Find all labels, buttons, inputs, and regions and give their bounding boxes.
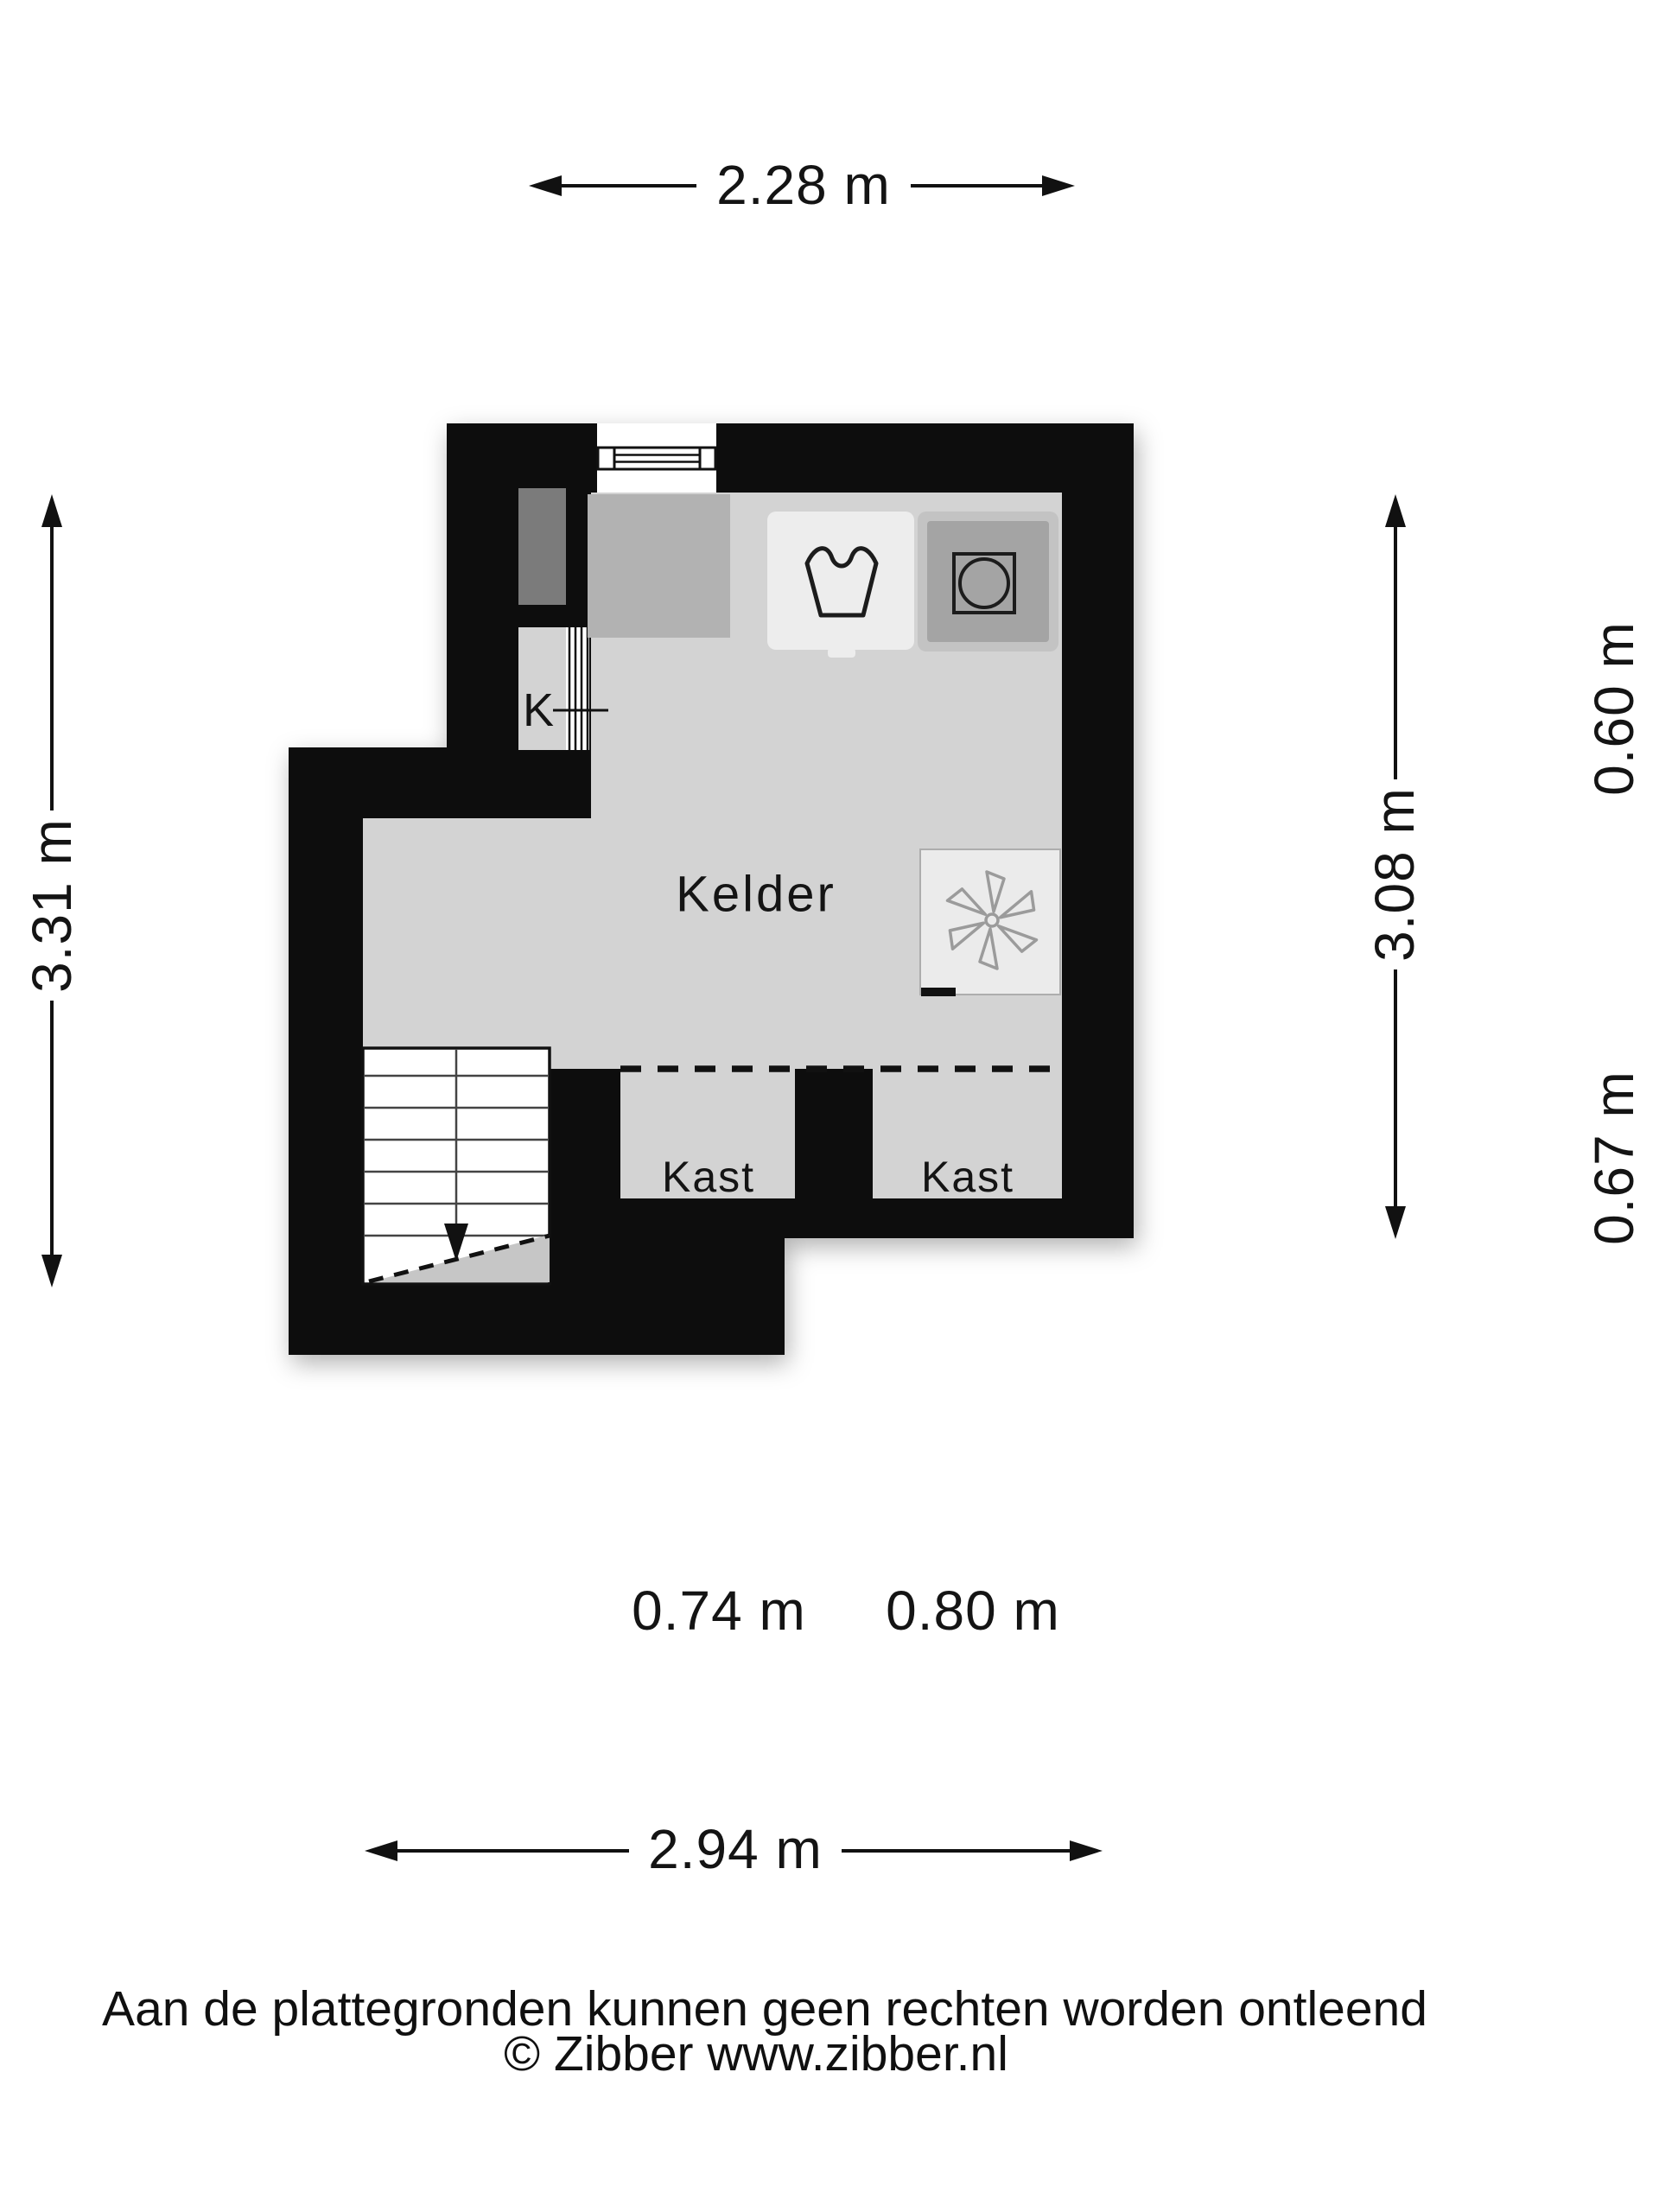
dimension-top-width: 2.28 m: [716, 153, 891, 217]
dryer-icon: [918, 512, 1058, 652]
floorplan-page: 2.28 m 3.31 m 3.08 m 0.60 m 0.67 m 0.74 …: [0, 0, 1659, 2212]
closet-label-right: Kast: [921, 1152, 1014, 1202]
wall-niche: [518, 488, 566, 605]
washing-machine-icon: [767, 512, 914, 658]
counter-block: [588, 494, 730, 638]
kelder-floor-left: [363, 818, 591, 1069]
dimension-right-lower: 0.67 m: [1582, 1071, 1646, 1245]
footer-copyright: © Zibber www.zibber.nl: [504, 2025, 1008, 2082]
stairs-icon: [363, 1048, 550, 1284]
ventilation-fan-icon: [920, 849, 1060, 996]
hatch-door-icon: [566, 627, 589, 750]
room-label-kelder: Kelder: [676, 866, 836, 924]
dimension-right-height: 3.08 m: [1363, 787, 1427, 962]
hatch-label: K: [523, 683, 554, 737]
dimension-left-height: 3.31 m: [20, 818, 84, 993]
window-icon: [597, 423, 716, 493]
closet-label-left: Kast: [662, 1152, 755, 1202]
dimension-closet-right-width: 0.80 m: [886, 1579, 1060, 1643]
dimension-right-upper: 0.60 m: [1582, 621, 1646, 796]
dimension-bottom-width: 2.94 m: [648, 1817, 823, 1881]
dimension-closet-left-width: 0.74 m: [632, 1579, 806, 1643]
floor-plan-drawing: [0, 0, 1659, 2212]
